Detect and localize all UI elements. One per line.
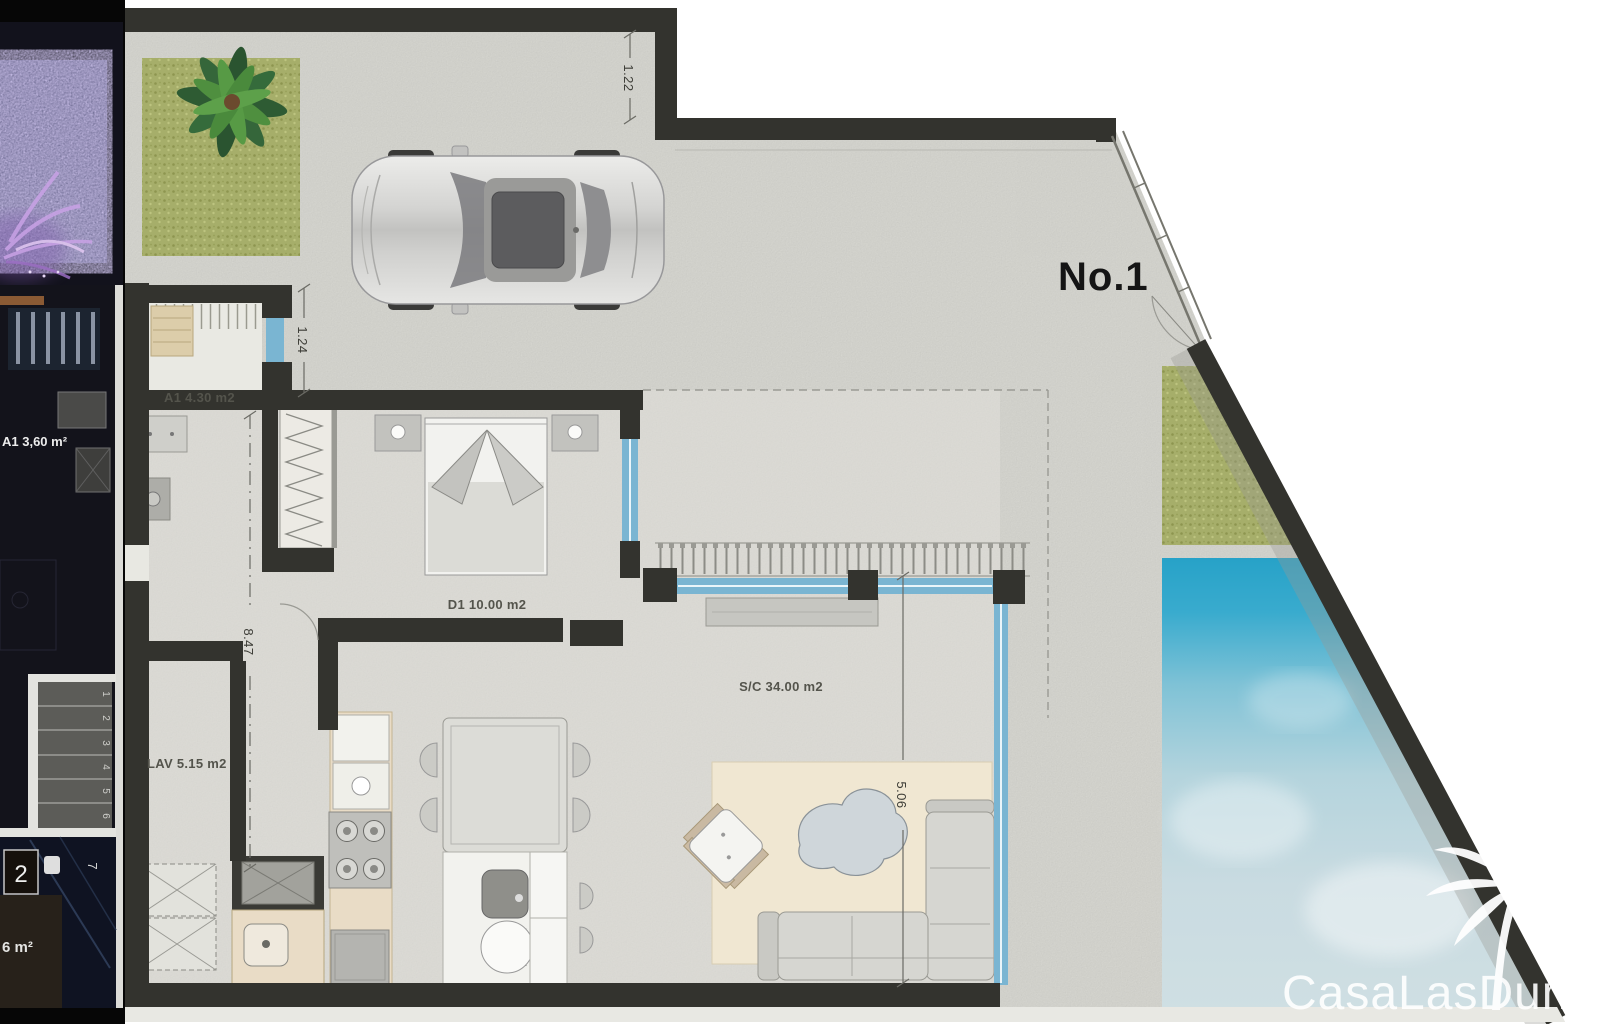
side-strip: A1 3,60 m² 1 2 3 4 5 6 <box>0 0 125 1024</box>
stair-number: 6 <box>100 813 111 819</box>
side-photo-thumbnail <box>0 22 123 288</box>
sink <box>482 870 528 918</box>
side-area-partial: 6 m² <box>2 939 33 956</box>
kitchen-island <box>420 718 590 852</box>
side-step-number: 7 <box>85 862 100 869</box>
round-table <box>481 921 533 973</box>
bed <box>425 418 547 575</box>
side-landing-number: 2 <box>14 861 27 888</box>
post <box>848 570 878 600</box>
floorplan-page: 1.22 1.24 8.47 5.06 A1 4.30 m2 D1 10.00 … <box>0 0 1600 1024</box>
side-room-label: A1 3,60 m² <box>2 434 68 449</box>
kitchen <box>329 712 593 985</box>
stove <box>329 812 391 888</box>
side-lower-plan: 2 7 6 m² <box>0 837 116 1008</box>
car <box>352 146 664 314</box>
dim-setback-top: 1.22 <box>621 64 636 91</box>
stair-number: 1 <box>100 691 111 697</box>
storage-glass-door <box>266 316 284 364</box>
fridge <box>331 930 389 984</box>
laundry-label: LAV 5.15 m2 <box>147 756 227 771</box>
stair-number: 5 <box>100 788 111 794</box>
floorplan-image: 1.22 1.24 8.47 5.06 A1 4.30 m2 D1 10.00 … <box>0 0 1600 1024</box>
unit-number: No.1 <box>1058 255 1149 299</box>
stair-number: 2 <box>100 715 111 721</box>
post <box>993 570 1025 604</box>
stair-number: 4 <box>100 764 111 770</box>
watermark-text: CasaLasDunas <box>1282 967 1600 1020</box>
post <box>643 568 677 602</box>
dim-plot-depth: 8.47 <box>241 628 256 655</box>
living-label: S/C 34.00 m2 <box>739 679 823 694</box>
dim-entry: 1.24 <box>295 326 310 353</box>
stair-door-gap <box>125 545 149 581</box>
stair-number: 3 <box>100 740 111 746</box>
pergola <box>655 543 1030 576</box>
side-plan: A1 3,60 m² 1 2 3 4 5 6 <box>0 285 123 1008</box>
dim-terrace-depth: 5.06 <box>894 781 909 808</box>
bedroom-label: D1 10.00 m2 <box>448 597 526 612</box>
storage-room-label: A1 4.30 m2 <box>164 390 235 405</box>
main-plan: 1.22 1.24 8.47 5.06 A1 4.30 m2 D1 10.00 … <box>125 0 1600 1024</box>
